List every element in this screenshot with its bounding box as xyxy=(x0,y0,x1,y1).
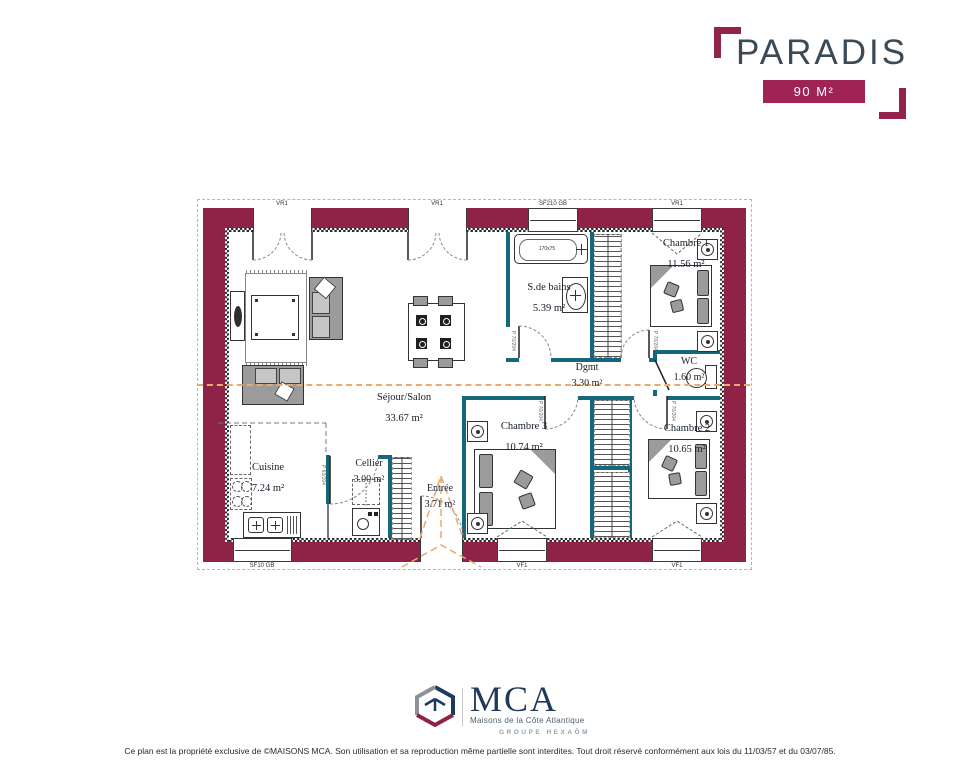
wall-cellier-left xyxy=(326,455,330,504)
nightstand xyxy=(696,503,717,524)
nightstand xyxy=(697,331,718,352)
room-label-cellier: Cellier 3.00 m² xyxy=(354,456,385,488)
cooktop xyxy=(230,478,252,510)
window-cuisine xyxy=(233,538,292,562)
dining-table xyxy=(408,303,465,361)
window-frame xyxy=(654,550,700,551)
chair-ring xyxy=(419,318,426,325)
copyright-disclaimer: Ce plan est la propriété exclusive de ©M… xyxy=(0,746,960,756)
opening-label: VR1 xyxy=(671,201,683,207)
room-label-wc: WC 1.60 m² xyxy=(674,354,705,386)
pillow xyxy=(697,298,709,324)
room-area: 1.60 m² xyxy=(674,370,705,386)
french-door-sejour-left xyxy=(253,208,312,232)
lamp-icon xyxy=(706,340,710,344)
chair-icon xyxy=(416,338,427,349)
dining-chair xyxy=(413,296,428,306)
opening-label: SF210 GB xyxy=(539,201,567,207)
table-leg xyxy=(255,333,258,336)
sofa xyxy=(309,277,343,340)
sink-basin xyxy=(248,517,264,533)
room-label-dgmt: Dgmt 3.30 m² xyxy=(572,360,603,392)
room-area: 33.67 m² xyxy=(377,408,431,429)
washer-knob xyxy=(368,512,372,516)
drainer-icon xyxy=(287,516,299,534)
room-name: Entrée xyxy=(425,481,456,497)
closet-chambre2 xyxy=(594,472,630,538)
room-area: 3.30 m² xyxy=(572,376,603,392)
window-frame xyxy=(235,550,290,551)
wall-dgmt-north xyxy=(649,358,657,362)
area-badge: 90 M² xyxy=(763,80,865,103)
section-line xyxy=(197,384,750,386)
table-leg xyxy=(255,299,258,302)
tap-icon xyxy=(271,525,280,526)
french-door-sejour-right xyxy=(408,208,467,232)
room-area: 3.71 m² xyxy=(425,497,456,513)
room-name: Chambre 2 xyxy=(664,418,710,439)
nightstand xyxy=(467,513,488,534)
nightstand xyxy=(467,421,488,442)
window-bathroom xyxy=(528,208,578,232)
chair-ring xyxy=(419,341,426,348)
lamp-icon xyxy=(476,430,480,434)
closet-chambre3 xyxy=(594,400,630,466)
chair-ring xyxy=(443,341,450,348)
tap-icon xyxy=(576,249,587,250)
wall-cellier-top xyxy=(326,455,330,459)
title-bracket-bottom-icon xyxy=(899,88,906,119)
dining-chair xyxy=(413,358,428,368)
pillow xyxy=(695,471,707,496)
mca-logo-icon xyxy=(414,684,456,730)
mca-logo-group: GROUPE HEXAŌM xyxy=(499,729,590,736)
opening-label: VF1 xyxy=(516,563,527,569)
room-area: 3.00 m² xyxy=(354,472,385,488)
room-label-chambre1: Chambre 1 11.56 m² xyxy=(663,233,709,275)
window-chambre1 xyxy=(652,208,702,232)
burner-icon xyxy=(241,481,252,492)
bathtub: 170x75 xyxy=(514,234,588,264)
room-area: 11.56 m² xyxy=(663,254,709,275)
wall-dgmt-north xyxy=(506,358,519,362)
wall-ch3-left xyxy=(462,396,466,538)
washer-knob xyxy=(374,512,378,516)
window-frame xyxy=(654,220,700,221)
dining-chair xyxy=(438,296,453,306)
wall-wc-left xyxy=(653,390,657,396)
room-label-sdb: S.de bains 5.39 m² xyxy=(527,277,570,319)
coffee-table xyxy=(251,295,299,340)
chair-icon xyxy=(416,315,427,326)
logo-divider xyxy=(462,688,463,726)
door-label: P 70/204 xyxy=(652,331,658,351)
counter-edge xyxy=(327,504,329,538)
sofa-cushion xyxy=(312,316,330,338)
title-bracket-top-icon xyxy=(714,27,721,58)
room-name: Chambre 3 xyxy=(501,416,547,437)
room-label-chambre2: Chambre 2 10.65 m² xyxy=(664,418,710,460)
mca-logo-text: MCA xyxy=(470,678,558,720)
opening-label: VR1 xyxy=(276,201,288,207)
room-name: Dgmt xyxy=(572,360,603,376)
room-name: Chambre 1 xyxy=(663,233,709,254)
dining-chair xyxy=(438,358,453,368)
room-name: WC xyxy=(674,354,705,370)
wall-closet-divider xyxy=(594,466,628,470)
floor-plan: VR1 VR1 SF210 GB VR1 SF10 GB VF1 VF1 xyxy=(197,199,753,571)
opening-label: VF1 xyxy=(671,563,682,569)
cushion xyxy=(668,472,682,486)
opening-label: SF10 GB xyxy=(250,563,275,569)
insulation-strip xyxy=(229,538,720,542)
table-leg xyxy=(292,299,295,302)
room-name: Cuisine xyxy=(252,457,284,478)
bathtub-size-label: 170x75 xyxy=(539,246,555,252)
window-frame xyxy=(530,220,576,221)
room-area: 10.74 m² xyxy=(501,437,547,458)
door-label: P 70/204 xyxy=(510,331,516,351)
wall-sdb-left xyxy=(506,232,510,327)
burner-icon xyxy=(241,496,252,507)
tap-icon xyxy=(570,295,581,296)
mca-logo-subtitle: Maisons de la Côte Atlantique xyxy=(470,716,585,725)
tap-icon xyxy=(252,525,261,526)
room-name: S.de bains xyxy=(527,277,570,298)
sink-basin xyxy=(267,517,283,533)
room-area: 10.65 m² xyxy=(664,439,710,460)
room-name: Cellier xyxy=(354,456,385,472)
lamp-icon xyxy=(705,512,709,516)
closet-entree xyxy=(392,457,412,540)
room-name: Séjour/Salon xyxy=(377,387,431,408)
cushion xyxy=(518,492,536,510)
room-label-entree: Entrée 3.71 m² xyxy=(425,481,456,513)
kitchen-sink-counter xyxy=(243,512,301,538)
window-chambre3 xyxy=(497,538,547,562)
sofa-cushion xyxy=(255,368,277,384)
door-label: P 63/204 xyxy=(320,465,326,485)
cushion xyxy=(663,281,680,298)
wall-bedrooms-north xyxy=(667,396,720,400)
chair-icon xyxy=(440,338,451,349)
room-label-chambre3: Chambre 3 10.74 m² xyxy=(501,416,547,458)
entrance-door-opening xyxy=(420,538,463,562)
chair-ring xyxy=(443,318,450,325)
plant-icon xyxy=(234,306,242,327)
wall-bedrooms-north xyxy=(462,396,545,400)
washer-door-icon xyxy=(357,518,369,530)
sideboard xyxy=(230,291,245,341)
pillow xyxy=(479,454,493,488)
window-frame xyxy=(499,550,545,551)
opening-label: VR1 xyxy=(431,201,443,207)
room-label-sejour: Séjour/Salon 33.67 m² xyxy=(377,387,431,429)
lamp-icon xyxy=(476,522,480,526)
rug-fringe xyxy=(246,270,308,274)
chair-icon xyxy=(440,315,451,326)
page-title: PARADIS xyxy=(736,33,908,73)
room-area: 7.24 m² xyxy=(252,478,284,499)
table-leg xyxy=(292,333,295,336)
window-chambre2 xyxy=(652,538,702,562)
appliance-outline xyxy=(230,425,251,475)
page: PARADIS 90 M² VR1 VR1 SF210 GB VR1 SF10 … xyxy=(0,0,960,768)
room-label-cuisine: Cuisine 7.24 m² xyxy=(252,457,284,499)
closet-dgmt xyxy=(594,234,622,358)
cushion xyxy=(670,299,685,314)
washing-machine xyxy=(352,508,380,536)
room-area: 5.39 m² xyxy=(527,298,570,319)
